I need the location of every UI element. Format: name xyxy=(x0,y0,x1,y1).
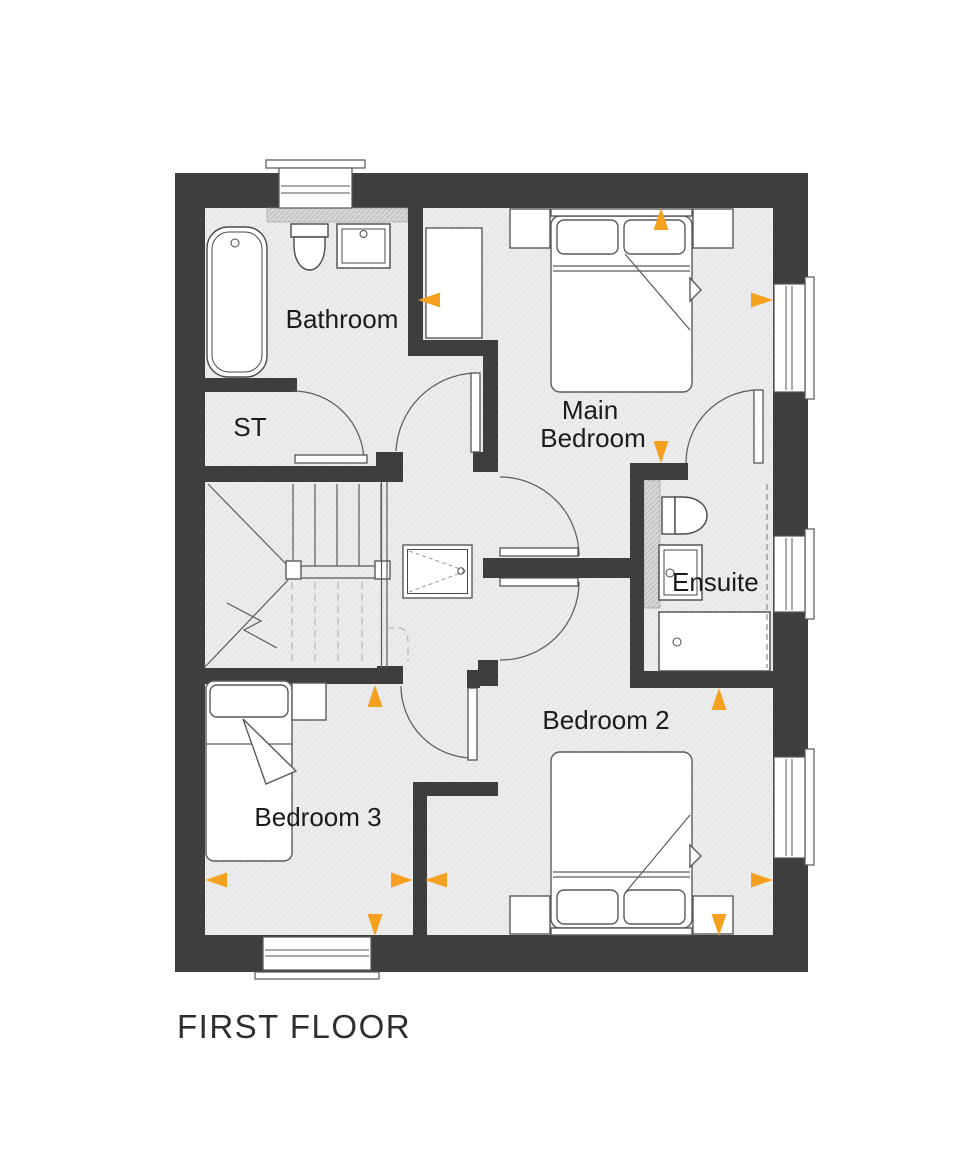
label-ensuite: Ensuite xyxy=(672,567,759,597)
wall-bathroom-step xyxy=(408,340,498,356)
wall-hall-mid xyxy=(483,558,643,578)
wall-bathroom-st xyxy=(205,378,297,392)
bedside-table xyxy=(693,209,733,248)
plan-title: FIRST FLOOR xyxy=(177,1008,411,1045)
wall-left xyxy=(175,173,205,972)
bedside-table xyxy=(292,683,326,720)
stair-newel xyxy=(286,561,301,579)
wall-bathroom-east xyxy=(408,208,423,348)
ensuite-boxing-strip xyxy=(644,480,660,608)
hatch-cupboard xyxy=(403,545,472,598)
wall-st-stairs xyxy=(205,466,390,482)
wall-stub-bedroom3-door-west xyxy=(377,666,403,684)
wall-ensuite-west xyxy=(630,463,644,688)
shower xyxy=(659,612,770,671)
double-bed xyxy=(551,752,701,935)
bathroom-boxing-strip xyxy=(267,208,408,222)
wall-stub-bathroom-door xyxy=(473,452,498,472)
stair-newel xyxy=(375,561,390,579)
label-bedroom-3: Bedroom 3 xyxy=(254,802,381,832)
window-bedroom2-right xyxy=(774,749,814,865)
wall-stub-landing-nw xyxy=(376,452,403,482)
window-bedroom3-bottom xyxy=(255,937,379,979)
toilet xyxy=(662,497,707,534)
label-main-bedroom-line1: Main xyxy=(562,395,618,425)
double-bed xyxy=(551,209,701,392)
wall-stub-hall-south xyxy=(478,660,498,686)
wardrobe xyxy=(426,228,482,338)
bedside-table xyxy=(510,209,550,248)
window-bathroom-top xyxy=(266,160,365,208)
single-bed xyxy=(206,681,296,861)
wall-ensuite-south xyxy=(630,671,773,688)
window-main-bedroom-right xyxy=(774,277,814,399)
bath xyxy=(207,227,267,377)
label-bathroom: Bathroom xyxy=(286,304,399,334)
label-storage: ST xyxy=(233,412,266,442)
basin xyxy=(337,224,390,268)
wall-bedroom3-bedroom2 xyxy=(413,782,427,940)
bedside-table xyxy=(510,896,550,934)
label-main-bedroom-line2: Bedroom xyxy=(540,423,646,453)
floor-plan-canvas: Bathroom ST Main Bedroom Ensuite Bedroom… xyxy=(0,0,976,1162)
label-bedroom-2: Bedroom 2 xyxy=(542,705,669,735)
wall-top xyxy=(175,173,808,208)
window-ensuite-right xyxy=(774,529,814,619)
